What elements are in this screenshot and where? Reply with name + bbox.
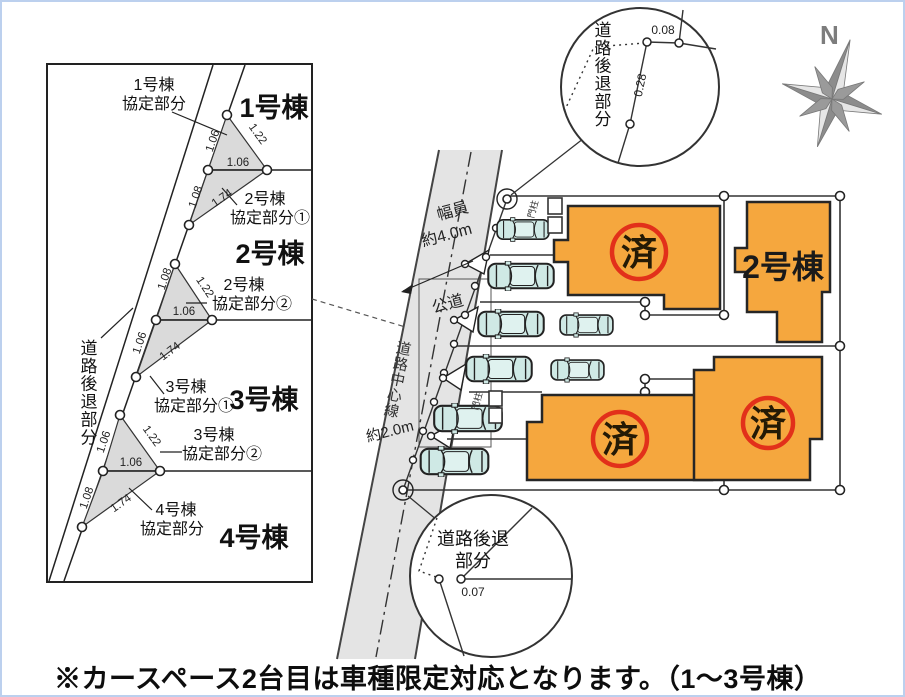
note-text: ※カースペース2台目は車種限定対応となります。（1～3号棟） (54, 663, 821, 694)
compass-north-label: N (820, 20, 839, 50)
agreement-label: 4号棟 (156, 501, 197, 519)
car (560, 313, 613, 337)
agreement-label: 2号棟 (245, 190, 286, 208)
lot-label-2: 2号棟 (235, 239, 305, 269)
bottom-callout-dot (457, 575, 465, 583)
agreement-label: 協定部分 (140, 520, 204, 538)
site-plan-drawing: 1.06 1.22 1.06 1.08 1.74 1.08 1.22 1.06 … (2, 2, 905, 697)
measurement: 1.06 (120, 457, 142, 469)
agreement-label: 協定部分① (230, 209, 310, 227)
car (421, 446, 489, 477)
agreement-label: 協定部分② (212, 295, 292, 313)
measurement: 1.06 (173, 306, 195, 318)
bottom-callout: 道路後退 部分 0.07 (410, 495, 572, 657)
agreement-label: 1号棟 (134, 76, 175, 94)
top-callout: 0.08 0.28 道路後退部分 (561, 8, 719, 166)
car (478, 309, 543, 339)
lot-label-4: 4号棟 (219, 523, 289, 553)
agreement-label: 2号棟 (224, 276, 265, 294)
gate-post-label: 門柱 (525, 199, 540, 219)
top-callout-label: 道路後退部分 (595, 21, 612, 129)
bottom-callout-label-2: 部分 (455, 551, 491, 571)
agreement-label: 協定部分 (122, 95, 186, 113)
lot-label-1: 1号棟 (239, 93, 309, 123)
sold-label-1: 済 (621, 232, 657, 273)
boundary-detail-panel: 1.06 1.22 1.06 1.08 1.74 1.08 1.22 1.06 … (47, 64, 312, 582)
top-callout-dim1: 0.08 (651, 23, 675, 37)
top-callout-leader (511, 135, 588, 195)
bottom-callout-dim: 0.07 (461, 585, 485, 599)
agreement-label: 協定部分② (182, 445, 262, 463)
car (466, 354, 531, 384)
car (488, 261, 553, 291)
sold-label-3: 済 (602, 419, 638, 460)
car (551, 358, 604, 382)
building-2-label: 2号棟 (742, 249, 825, 285)
agreement-label: 3号棟 (194, 426, 235, 444)
top-callout-dot (626, 120, 634, 128)
compass-rose: N (768, 20, 900, 162)
bottom-callout-dot (435, 575, 443, 583)
top-callout-line (647, 42, 679, 43)
lot-label-3: 3号棟 (229, 385, 299, 415)
agreement-label: 協定部分① (154, 397, 234, 415)
sold-label-4: 済 (750, 403, 786, 444)
top-callout-dot (643, 38, 651, 46)
site-plan-page: 1.06 1.22 1.06 1.08 1.74 1.08 1.22 1.06 … (0, 0, 905, 697)
measurement: 1.06 (227, 157, 249, 169)
bottom-callout-label-1: 道路後退 (437, 529, 509, 549)
top-callout-dot (675, 39, 683, 47)
road-width-arrowhead (401, 284, 413, 294)
agreement-label: 3号棟 (166, 378, 207, 396)
car (497, 218, 549, 242)
road-setback-label: 道路後退部分 (81, 339, 98, 447)
